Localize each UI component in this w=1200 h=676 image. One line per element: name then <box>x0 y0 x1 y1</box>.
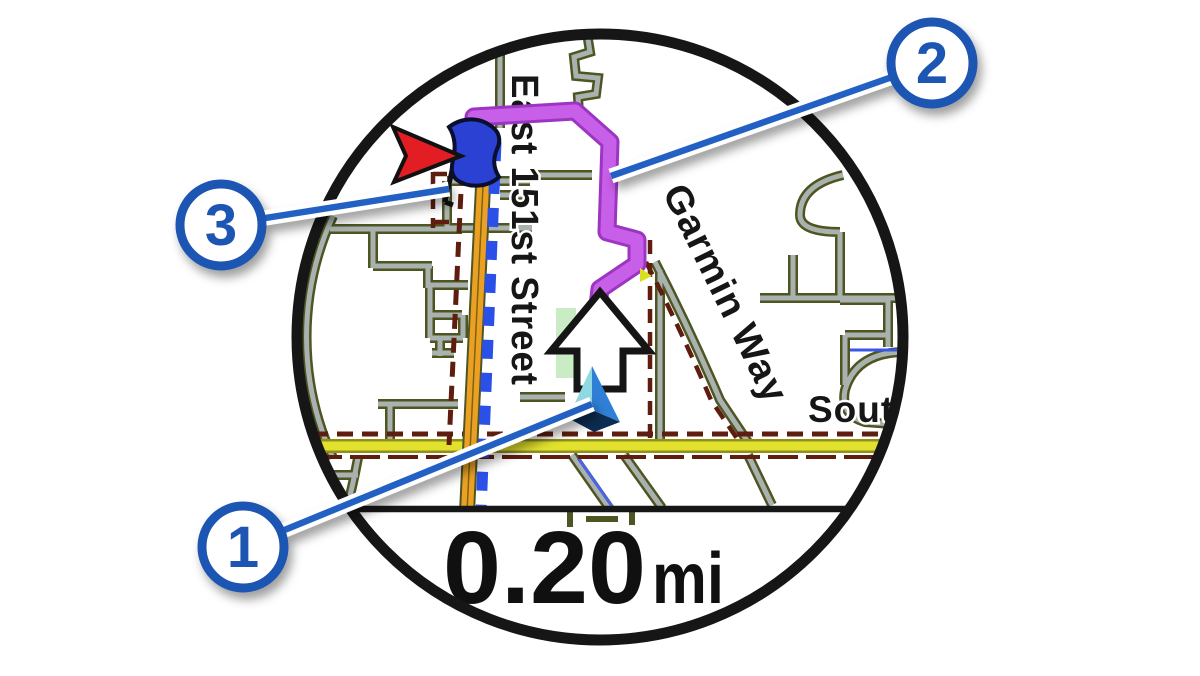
figure-svg: East 151st Street Garmin Way Sout <box>0 0 1200 676</box>
callout-3-number: 3 <box>205 193 237 258</box>
distance-unit: mi <box>652 539 724 619</box>
callout-1-number: 1 <box>227 515 259 580</box>
callout-2-badge: 2 <box>891 22 973 104</box>
callout-2-number: 2 <box>916 31 948 96</box>
watch-navigation-figure: East 151st Street Garmin Way Sout <box>0 0 1200 676</box>
callout-1-badge: 1 <box>202 506 284 588</box>
callout-3-badge: 3 <box>180 184 262 266</box>
street-label-south: Sout <box>808 389 894 430</box>
